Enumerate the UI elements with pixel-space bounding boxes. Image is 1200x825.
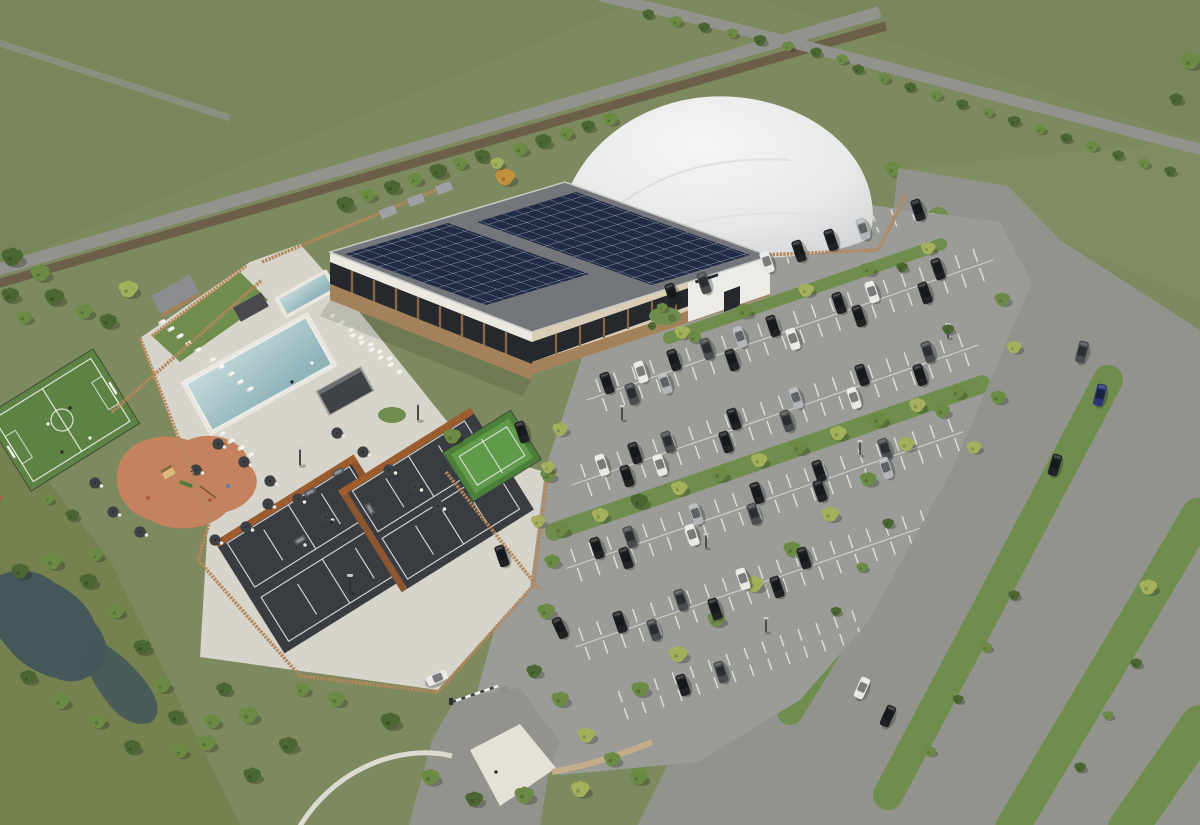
aerial-rendering-canvas [0, 0, 1200, 825]
aerial-rendering [0, 0, 1200, 825]
